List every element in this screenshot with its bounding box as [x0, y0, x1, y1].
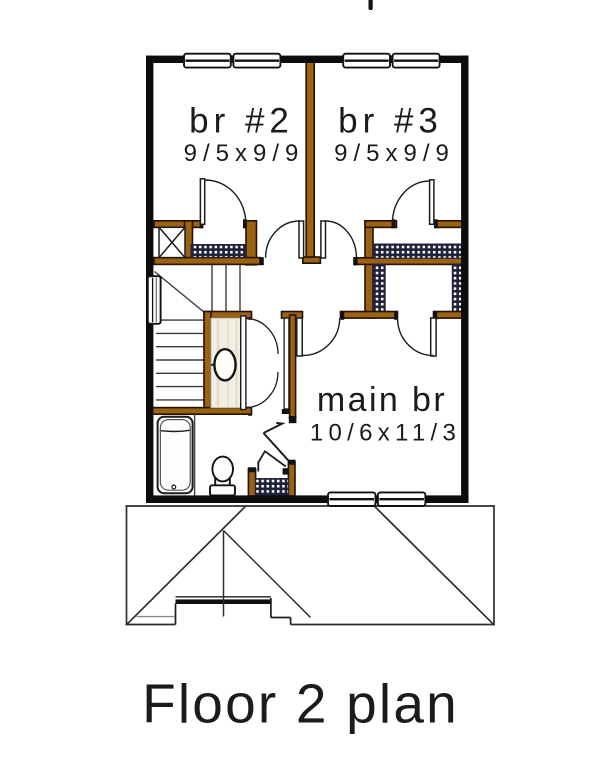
svg-text:9/5x9/9: 9/5x9/9 [184, 140, 305, 167]
svg-text:br #2: br #2 [189, 102, 294, 141]
svg-text:main br: main br [317, 381, 447, 419]
svg-text:9/5x9/9: 9/5x9/9 [334, 140, 455, 167]
svg-text:10/6x11/3: 10/6x11/3 [310, 420, 461, 447]
svg-text:br #3: br #3 [338, 102, 443, 141]
svg-text:Floor 2 plan: Floor 2 plan [142, 673, 459, 735]
